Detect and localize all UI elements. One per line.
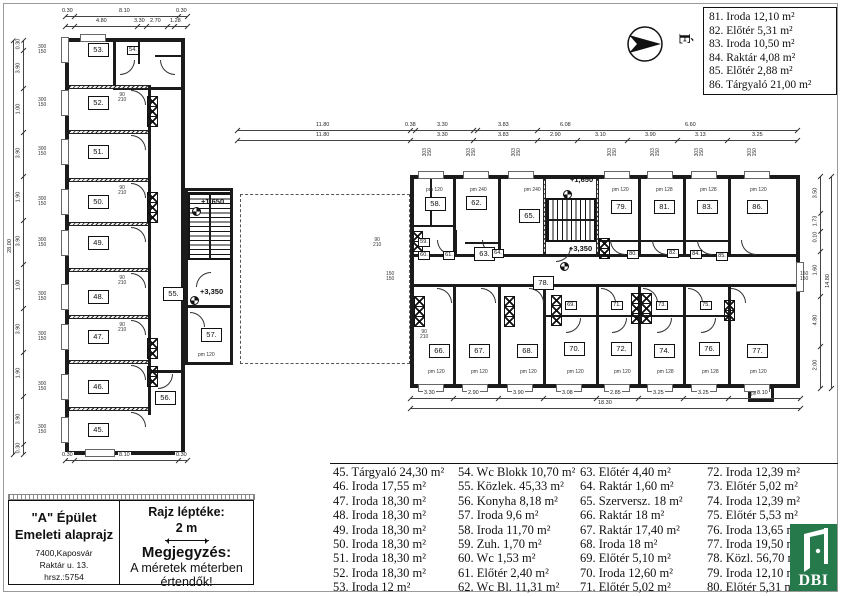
room-number-box: 78. [533, 276, 554, 290]
room-list-item: 63. Előtér 4,40 m² [580, 465, 683, 479]
plan-annotation: pm 120 [198, 352, 215, 358]
wall [455, 230, 457, 254]
plan-annotation: pm 240 [470, 187, 487, 193]
room-number-box: 62. [466, 196, 487, 210]
note-line-1: A méretek méterben [120, 561, 253, 575]
parcel-number: hrsz.:5754 [9, 571, 119, 583]
dimension-label: 11.80 [315, 132, 330, 138]
dimension-label: 3.83 [497, 132, 510, 138]
building-name: "A" Épület [9, 509, 119, 526]
dimension-label: 6.60 [684, 122, 697, 128]
dimension-label: 3.90 [15, 62, 21, 75]
dimension-label: 6.08 [559, 122, 572, 128]
window [604, 171, 630, 179]
room-number-box: 67. [469, 344, 490, 358]
window [647, 171, 673, 179]
drawing-name: Emeleti alaprajz [9, 526, 119, 543]
dimension-pair-label: 303 150 [512, 148, 522, 156]
room-number-box-small: 75. [700, 301, 712, 310]
room-number-box: 45. [88, 423, 109, 437]
dimension-pair-label: 90 210 [118, 186, 126, 196]
wall [69, 268, 150, 272]
dimension-line [410, 408, 800, 409]
wall [69, 178, 150, 182]
legend-item: 83. Iroda 10,50 m² [709, 38, 831, 52]
room-number-box-small: 82. [667, 249, 679, 258]
room-number-box: 47. [88, 330, 109, 344]
dimension-label: 8.10 [118, 8, 131, 14]
shaft-grate [551, 315, 562, 326]
room-list-item: 74. Iroda 12,39 m² [707, 494, 801, 508]
dimension-line [23, 40, 24, 454]
dimension-line [820, 176, 821, 388]
legend-item: 86. Tárgyaló 21,00 m² [709, 79, 831, 93]
wall [498, 287, 501, 384]
room-number-box: 58. [425, 197, 446, 211]
room-list-item: 79. Iroda 12,10 m² [707, 566, 801, 580]
dimension-label: 4.80 [812, 314, 818, 327]
dimension-pair-label: 150 150 [800, 272, 808, 282]
wall [113, 38, 116, 90]
room-number-box: 66. [429, 344, 450, 358]
room-list-item: 77. Iroda 19,50 m² [707, 537, 801, 551]
dimension-pair-label: 303 150 [748, 148, 758, 156]
dimension-pair-label: 90 210 [118, 323, 126, 333]
legend-item: 81. Iroda 12,10 m² [709, 11, 831, 25]
room-list-item: 45. Tárgyaló 24,30 m² [333, 465, 444, 479]
plan-annotation: pm 120 [520, 369, 537, 375]
window [61, 284, 69, 310]
level-marker-icon [190, 296, 199, 305]
legend-box: 81. Iroda 12,10 m²82. Előtér 5,31 m²83. … [703, 7, 837, 95]
wall [596, 287, 599, 384]
scale-value: 2 m [120, 520, 253, 536]
dimension-line [237, 130, 797, 131]
legend-item: 82. Előtér 5,31 m² [709, 25, 831, 39]
room-number-box: 46. [88, 380, 109, 394]
dimension-pair-label: 300 150 [38, 147, 46, 157]
dimension-label: 3.90 [15, 323, 21, 336]
wall [638, 179, 641, 254]
title-block-scale-note: Rajz léptéke: 2 m Megjegyzés: A méretek … [119, 500, 254, 585]
dimension-label: 2.00 [812, 359, 818, 372]
room-number-box: 86. [747, 200, 768, 214]
dimension-pair-label: 90 210 [373, 238, 381, 248]
plan-annotation: pm 120 [428, 369, 445, 375]
legend-item: 84. Raktár 4,08 m² [709, 52, 831, 66]
shaft-grate [147, 348, 158, 359]
level-marker-value: +1,650 [201, 197, 224, 206]
room-number-box: 77. [747, 344, 768, 358]
room-number-box: 52. [88, 96, 109, 110]
wall [453, 287, 456, 384]
dimension-tick [795, 128, 801, 134]
window [463, 171, 489, 179]
room-number-box-small: 84. [690, 250, 702, 259]
window [61, 37, 69, 63]
wall [683, 287, 686, 384]
level-marker-value: +3,350 [200, 287, 223, 296]
wall [412, 225, 455, 227]
dimension-tick [798, 406, 804, 412]
room-number-box: 48. [88, 290, 109, 304]
room-list-column: 72. Iroda 12,39 m²73. Előtér 5,02 m²74. … [707, 465, 801, 595]
room-number-box-small: 85. [716, 252, 728, 261]
dimension-label: 0.10 [812, 231, 818, 244]
dimension-label: 3.10 [594, 132, 607, 138]
room-list-item: 75. Előtér 5,53 m² [707, 508, 801, 522]
dimension-pair-label: 300 150 [38, 98, 46, 108]
room-number-box: 57. [201, 328, 222, 342]
dimension-label: 3.90 [15, 147, 21, 160]
room-list-item: 59. Zuh. 1,70 m² [458, 537, 575, 551]
dimension-line [65, 26, 187, 27]
wall [69, 85, 150, 89]
dimension-pair-label: 303 150 [608, 148, 618, 156]
dimension-label: 3.30 [436, 132, 449, 138]
north-letter: É [674, 34, 692, 45]
room-number-box: 79. [611, 200, 632, 214]
scale-label: Rajz léptéke: [120, 504, 253, 520]
note-line-2: értendők! [120, 575, 253, 589]
dimension-label: 3.08 [561, 390, 574, 396]
room-number-box: 76. [699, 342, 720, 356]
dimension-line [237, 140, 797, 141]
room-list-item: 49. Iroda 18,30 m² [333, 523, 444, 537]
window [61, 139, 69, 165]
dimension-line [13, 40, 14, 454]
dimension-label: 8.10 [118, 452, 131, 458]
level-marker-icon [563, 190, 572, 199]
window [61, 189, 69, 215]
scale-bar [165, 540, 209, 541]
room-list-item: 60. Wc 1,53 m² [458, 551, 575, 565]
dimension-label: 3.90 [512, 390, 525, 396]
plan-annotation: pm 120 [471, 369, 488, 375]
window [418, 171, 444, 179]
room-list-item: 66. Raktár 18 m² [580, 508, 683, 522]
window [61, 324, 69, 350]
dimension-pair-label: 300 150 [38, 332, 46, 342]
north-indicator: É [626, 25, 706, 65]
dimension-pair-label: 300 150 [38, 382, 46, 392]
dimension-label: 3.90 [15, 235, 21, 248]
dimension-label: 18.30 [597, 400, 613, 406]
room-number-box: 70. [564, 342, 585, 356]
room-number-box: 68. [517, 344, 538, 358]
room-number-box: 53. [88, 43, 109, 57]
dimension-line [410, 398, 800, 399]
room-list-item: 53. Iroda 12 m² [333, 580, 444, 594]
room-number-box-small: 80. [627, 250, 639, 259]
room-list-item: 64. Raktár 1,60 m² [580, 479, 683, 493]
shaft-grate [504, 316, 515, 327]
room-list-item: 68. Iroda 18 m² [580, 537, 683, 551]
room-list-item: 71. Előtér 5,02 m² [580, 580, 683, 594]
room-number-box: 83. [697, 200, 718, 214]
dimension-label: 1.90 [15, 191, 21, 204]
wall [69, 360, 150, 364]
room-number-box-small: 59. [418, 238, 430, 247]
dimension-label: 8.10 [756, 390, 769, 396]
room-list-column: 45. Tárgyaló 24,30 m²46. Iroda 17,55 m²4… [333, 465, 444, 595]
dimension-pair-label: 90 210 [420, 330, 428, 340]
dimension-line [65, 460, 187, 461]
wall [69, 407, 150, 411]
room-list-item: 67. Raktár 17,40 m² [580, 523, 683, 537]
shaft-grate [641, 313, 652, 324]
dimension-label: 0.30 [15, 38, 21, 51]
room-list-item: 55. Közlek. 45,33 m² [458, 479, 575, 493]
dimension-pair-label: 303 150 [467, 148, 477, 156]
dimension-label: 3.50 [812, 187, 818, 200]
room-list-item: 78. Közl. 56,70 m² [707, 551, 801, 565]
plan-annotation: pm 120 [612, 187, 629, 193]
level-marker-icon [192, 207, 201, 216]
dimension-pair-label: 300 150 [38, 292, 46, 302]
dimension-label: 3.30 [436, 122, 449, 128]
shaft-grate [414, 316, 425, 327]
dimension-label: 1.73 [812, 215, 818, 228]
room-number-box: 50. [88, 195, 109, 209]
address-street: Raktár u. 13. [9, 559, 119, 571]
shaft-grate [599, 248, 610, 259]
room-list-item: 54. Wc Blokk 10,70 m² [458, 465, 575, 479]
dimension-label: 3.90 [644, 132, 657, 138]
room-number-box: 81. [654, 200, 675, 214]
wall [69, 222, 150, 226]
room-number-box: 55. [163, 287, 184, 301]
room-list-item: 46. Iroda 17,55 m² [333, 479, 444, 493]
room-list-item: 52. Iroda 18,30 m² [333, 566, 444, 580]
level-marker-value: +1,650 [570, 175, 593, 184]
dimension-label: 3.30 [423, 390, 436, 396]
room-list-item: 61. Előtér 2,40 m² [458, 566, 575, 580]
dimension-line [831, 176, 832, 388]
plan-annotation: pm 120 [567, 369, 584, 375]
dimension-label: 3.30 [133, 18, 146, 24]
room-list-item: 51. Iroda 18,30 m² [333, 551, 444, 565]
note-title: Megjegyzés: [120, 544, 253, 561]
window [691, 171, 717, 179]
plan-annotation: pm 128 [700, 187, 717, 193]
company-logo: DBI [790, 524, 837, 591]
room-number-box: 74. [654, 344, 675, 358]
north-arrow-icon [626, 25, 664, 63]
window [80, 34, 106, 42]
window [744, 171, 770, 179]
room-list-item: 65. Szerversz. 18 m² [580, 494, 683, 508]
dimension-label: 0.30 [175, 8, 188, 14]
shaft-grate [147, 116, 158, 127]
dimension-label: 3.25 [652, 390, 665, 396]
plan-annotation: pm 128 [702, 369, 719, 375]
dimension-label: 3.90 [15, 413, 21, 426]
room-number-box-small: 60. [418, 251, 430, 260]
room-number-box: 65. [519, 209, 540, 223]
plan-annotation: pm 120 [750, 369, 767, 375]
wall [728, 179, 731, 254]
dimension-tick [185, 14, 191, 20]
room-number-box: 72. [611, 342, 632, 356]
dimension-pair-label: 300 150 [38, 197, 46, 207]
dimension-pair-label: 303 150 [695, 148, 705, 156]
plan-annotation: pm 240 [524, 187, 541, 193]
room-list: 45. Tárgyaló 24,30 m²46. Iroda 17,55 m²4… [330, 463, 838, 593]
window [61, 230, 69, 256]
dimension-label: 3.13 [694, 132, 707, 138]
dimension-label: 2.90 [549, 132, 562, 138]
wall [155, 55, 185, 57]
room-number-box: 49. [88, 236, 109, 250]
dimension-label: 1.28 [169, 18, 182, 24]
plan-annotation: pm 128 [657, 369, 674, 375]
dimension-pair-label: 303 150 [423, 148, 433, 156]
dimension-label: 0.30 [61, 452, 74, 458]
room-number-box-small: 73. [656, 301, 668, 310]
room-list-item: 57. Iroda 9,6 m² [458, 508, 575, 522]
dimension-label: 14.80 [825, 273, 831, 289]
dimension-pair-label: 300 150 [38, 425, 46, 435]
dimension-label: 0.30 [15, 442, 21, 455]
room-list-column: 54. Wc Blokk 10,70 m²55. Közlek. 45,33 m… [458, 465, 575, 595]
room-number-box: 51. [88, 145, 109, 159]
room-number-box-small: 71. [611, 301, 623, 310]
room-list-item: 70. Iroda 12,60 m² [580, 566, 683, 580]
shaft-grate [147, 376, 158, 387]
room-list-item: 50. Iroda 18,30 m² [333, 537, 444, 551]
window [61, 90, 69, 116]
address-city: 7400,Kaposvár [9, 547, 119, 559]
wall [498, 179, 501, 254]
window [508, 171, 534, 179]
window [61, 374, 69, 400]
dimension-label: 1.00 [15, 103, 21, 116]
room-list-item: 80. Előtér 5,31 m² [707, 580, 801, 594]
dimension-label: 1.00 [15, 279, 21, 292]
dimension-label: 0.38 [404, 122, 417, 128]
legend-item: 85. Előtér 2,88 m² [709, 65, 831, 79]
wall [69, 130, 150, 134]
shaft-grate [724, 310, 735, 321]
dimension-pair-label: 90 210 [118, 276, 126, 286]
wall [543, 179, 546, 254]
plan-annotation: pm 120 [426, 187, 443, 193]
window [61, 417, 69, 443]
room-list-column: 63. Előtér 4,40 m²64. Raktár 1,60 m²65. … [580, 465, 683, 595]
room-list-item: 56. Konyha 8,18 m² [458, 494, 575, 508]
wall [69, 315, 150, 319]
dimension-label: 1.90 [15, 367, 21, 380]
plan-annotation: pm 120 [750, 187, 767, 193]
dimension-label: 2.90 [467, 390, 480, 396]
dimension-pair-label: 90 210 [118, 93, 126, 103]
dimension-tick [798, 396, 804, 402]
dimension-label: 28.00 [7, 238, 13, 254]
room-list-item: 47. Iroda 18,30 m² [333, 494, 444, 508]
dimension-pair-label: 300 150 [38, 238, 46, 248]
courtyard-dashed-outline [240, 194, 410, 364]
room-list-item: 76. Iroda 13,65 m² [707, 523, 801, 537]
room-list-item: 72. Iroda 12,39 m² [707, 465, 801, 479]
dimension-pair-label: 300 150 [38, 45, 46, 55]
room-list-item: 69. Előtér 5,10 m² [580, 551, 683, 565]
room-number-box: 56. [155, 391, 176, 405]
room-list-item: 58. Iroda 11,70 m² [458, 523, 575, 537]
dimension-label: 3.25 [751, 132, 764, 138]
dimension-label: 11.80 [315, 122, 330, 128]
room-number-box-small: 61. [443, 251, 455, 260]
dimension-label: 3.83 [497, 122, 510, 128]
wall [683, 179, 686, 254]
level-marker-value: +3,350 [569, 244, 592, 253]
dimension-tick [185, 24, 191, 30]
room-number-box-small: 69. [565, 301, 577, 310]
dimension-label: 1.60 [812, 264, 818, 277]
wall [185, 305, 233, 308]
dimension-tick [21, 452, 27, 458]
title-block-project: "A" Épület Emeleti alaprajz 7400,Kaposvá… [8, 500, 120, 585]
logo-text: DBI [790, 572, 837, 590]
room-list-item: 48. Iroda 18,30 m² [333, 508, 444, 522]
dimension-label: 0.30 [61, 8, 74, 14]
room-number-box-small: 64. [492, 249, 504, 258]
room-list-item: 62. Wc Bl. 11,31 m² [458, 580, 575, 594]
drawing-sheet: 53.52.51.50.49.48.47.46.45.55.56.57.58.6… [0, 0, 841, 595]
dimension-label: 2.85 [609, 390, 622, 396]
dimension-tick [818, 386, 824, 392]
dimension-label: 4.80 [95, 18, 108, 24]
dimension-label: 2.70 [149, 18, 162, 24]
dimension-tick [829, 386, 835, 392]
window [85, 449, 115, 457]
dimension-pair-label: 303 150 [651, 148, 661, 156]
dimension-label: 3.25 [697, 390, 710, 396]
shaft-grate [147, 212, 158, 223]
plan-annotation: pm 120 [614, 369, 631, 375]
dimension-line [65, 16, 187, 17]
room-number-box-small: 54. [127, 46, 139, 55]
dimension-pair-label: 150 150 [386, 272, 394, 282]
dimension-label: 0.30 [175, 452, 188, 458]
dimension-tick [185, 458, 191, 464]
level-marker-icon [560, 262, 569, 271]
dimension-tick [795, 138, 801, 144]
wall [414, 284, 796, 287]
plan-annotation: pm 128 [656, 187, 673, 193]
room-list-item: 73. Előtér 5,02 m² [707, 479, 801, 493]
wall [546, 219, 596, 221]
